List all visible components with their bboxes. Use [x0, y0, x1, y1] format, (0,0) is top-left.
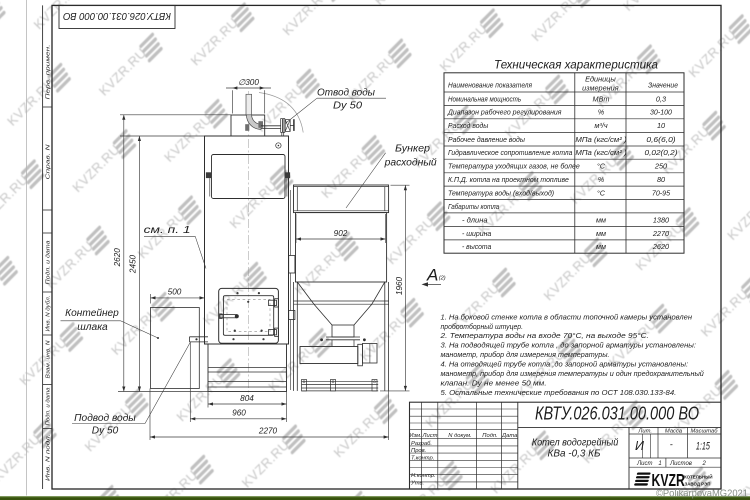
svg-text:∅300: ∅300 — [238, 78, 259, 87]
svg-text:измерения: измерения — [582, 84, 619, 93]
svg-text:К.П.Д. котла на проектном топл: К.П.Д. котла на проектном топливе — [448, 175, 569, 184]
svg-text:(2): (2) — [439, 276, 446, 282]
svg-text:Подп.: Подп. — [482, 433, 497, 439]
svg-text:Разраб.: Разраб. — [411, 441, 432, 447]
svg-text:80: 80 — [657, 175, 665, 184]
svg-text:манометр, прибор для измерения: манометр, прибор для измерения температу… — [441, 350, 610, 359]
svg-text:1380: 1380 — [653, 215, 669, 224]
svg-text:1. На боковой стенке котла в: 1. На боковой стенке котла в области топ… — [441, 312, 693, 321]
svg-text:мм: мм — [596, 215, 606, 224]
svg-text:4. На отводящей трубе котла ,: 4. На отводящей трубе котла ,до запорной… — [441, 360, 689, 369]
svg-text:Наименование показателя: Наименование показателя — [448, 81, 532, 90]
svg-text:N докум.: N докум. — [448, 433, 471, 439]
svg-text:Взам. инв. N: Взам. инв. N — [45, 339, 51, 378]
svg-text:Перв. примен.: Перв. примен. — [45, 45, 51, 100]
svg-text:м³/ч: м³/ч — [594, 121, 607, 130]
svg-text:Масштаб: Масштаб — [690, 429, 718, 435]
svg-text:Справ. N: Справ. N — [45, 143, 51, 179]
svg-text:ЗАВОД РЭП: ЗАВОД РЭП — [685, 481, 711, 486]
svg-text:Котел водогрейный: Котел водогрейный — [532, 437, 619, 448]
svg-text:МПа (кгс/см² ): МПа (кгс/см² ) — [575, 148, 626, 157]
svg-text:А: А — [426, 265, 438, 284]
svg-text:Т.контр.: Т.контр. — [411, 455, 434, 461]
svg-text:2620: 2620 — [113, 248, 122, 268]
svg-text:МВт: МВт — [592, 94, 609, 103]
svg-text:Диапазон рабочего регулировани: Диапазон рабочего регулирования — [447, 108, 562, 117]
svg-text:10: 10 — [657, 121, 665, 130]
svg-text:70-95: 70-95 — [652, 188, 671, 197]
svg-text:Лит.: Лит. — [637, 429, 652, 435]
svg-text:- ширина: - ширина — [462, 229, 491, 238]
svg-text:960: 960 — [232, 409, 246, 418]
svg-text:Бункер: Бункер — [395, 144, 430, 155]
svg-text:2270: 2270 — [652, 229, 669, 238]
svg-text:2270: 2270 — [258, 427, 278, 436]
svg-text:КОТЕЛЬНЫЙ: КОТЕЛЬНЫЙ — [684, 474, 713, 479]
svg-text:мм: мм — [596, 242, 606, 251]
svg-text:3. На подводящей трубе котла: 3. На подводящей трубе котла , до запорн… — [441, 341, 697, 350]
svg-text:0,02(0,2): 0,02(0,2) — [645, 148, 678, 157]
svg-text:И: И — [635, 439, 644, 453]
svg-text:Расход воды: Расход воды — [448, 121, 489, 130]
svg-text:мм: мм — [596, 229, 606, 238]
svg-text:1960: 1960 — [395, 276, 404, 295]
svg-text:расходный: расходный — [384, 157, 437, 168]
svg-text:Инв. N дубл.: Инв. N дубл. — [45, 296, 51, 332]
svg-text:°С: °С — [597, 162, 606, 171]
svg-text:2620: 2620 — [652, 242, 669, 251]
svg-text:°С: °С — [597, 188, 606, 197]
svg-text:Масса: Масса — [665, 429, 683, 435]
svg-text:Температура уходящих газов, не: Температура уходящих газов, не более — [448, 162, 580, 171]
svg-text:Утв.: Утв. — [410, 480, 424, 486]
svg-text:500: 500 — [168, 288, 182, 297]
svg-text:Рабочее давление воды: Рабочее давление воды — [448, 135, 525, 144]
svg-text:- длина: - длина — [462, 215, 488, 224]
svg-text:Лист: Лист — [422, 433, 438, 439]
svg-text:см. п. 1: см. п. 1 — [144, 225, 191, 236]
svg-text:МПа (кгс/см² ): МПа (кгс/см² ) — [575, 135, 626, 144]
svg-text:902: 902 — [334, 229, 348, 238]
svg-text:манометр, прибор для измерения: манометр, прибор для измерения температу… — [441, 369, 705, 378]
svg-text:804: 804 — [240, 394, 254, 403]
svg-text:Подп. и дата: Подп. и дата — [45, 388, 51, 426]
svg-text:30-100: 30-100 — [650, 108, 672, 117]
svg-text:Инв. N подл.: Инв. N подл. — [45, 434, 51, 481]
svg-text:-: - — [670, 440, 673, 450]
svg-text:- высота: - высота — [462, 242, 491, 251]
svg-text:1:15: 1:15 — [696, 440, 711, 452]
svg-text:Гидравлическое сопротивление к: Гидравлическое сопротивление котла — [448, 148, 572, 157]
svg-text:Дата: Дата — [501, 433, 518, 439]
svg-text:%: % — [598, 175, 605, 184]
svg-text:Изм.: Изм. — [409, 433, 421, 439]
svg-text:©PolikarpovaMG2021: ©PolikarpovaMG2021 — [656, 488, 748, 499]
svg-text:Dу 50: Dу 50 — [333, 100, 363, 111]
svg-text:Единицы: Единицы — [585, 75, 616, 84]
svg-text:250: 250 — [654, 162, 667, 171]
svg-text:Dу 50: Dу 50 — [92, 426, 119, 437]
svg-text:Подвод воды: Подвод воды — [74, 413, 136, 424]
svg-text:КВа -0,3 КБ: КВа -0,3 КБ — [548, 448, 601, 459]
svg-text:КВТУ.026.031.00.000 ВО: КВТУ.026.031.00.000 ВО — [63, 10, 171, 21]
svg-text:Номинальная мощность: Номинальная мощность — [448, 94, 521, 103]
svg-text:Отвод воды: Отвод воды — [317, 88, 376, 99]
svg-text:1: 1 — [658, 461, 661, 467]
svg-text:5. Остальные технические треб: 5. Остальные технические требования по О… — [441, 388, 677, 397]
svg-text:шлака: шлака — [77, 322, 108, 333]
svg-text:2. Температура воды на входе: 2. Температура воды на входе 70°С, на вы… — [439, 331, 648, 340]
svg-text:2: 2 — [702, 461, 707, 467]
svg-text:Лист: Лист — [636, 461, 652, 467]
svg-text:Техническая характеристика: Техническая характеристика — [494, 58, 658, 72]
svg-text:Температура воды (вход/выход): Температура воды (вход/выход) — [448, 188, 554, 197]
svg-text:Значение: Значение — [648, 81, 678, 90]
svg-text:%: % — [598, 108, 605, 117]
svg-text:Пров.: Пров. — [411, 448, 426, 454]
svg-text:0,6(6,0): 0,6(6,0) — [646, 135, 675, 144]
svg-text:Подп. и дата: Подп. и дата — [45, 241, 51, 285]
svg-text:Контейнер: Контейнер — [65, 308, 119, 319]
svg-text:пробоотборный штуцер.: пробоотборный штуцер. — [441, 322, 524, 331]
svg-text:КВТУ.026.031.00.000 ВО: КВТУ.026.031.00.000 ВО — [535, 403, 699, 424]
svg-text:Габариты котла: Габариты котла — [448, 202, 499, 211]
svg-text:2450: 2450 — [129, 254, 138, 274]
svg-text:Н.контр.: Н.контр. — [411, 473, 436, 479]
svg-text:0,3: 0,3 — [656, 94, 666, 103]
svg-text:Листов: Листов — [669, 461, 692, 467]
svg-text:клапан. Dу не менее 50 мм.: клапан. Dу не менее 50 мм. — [441, 379, 547, 388]
